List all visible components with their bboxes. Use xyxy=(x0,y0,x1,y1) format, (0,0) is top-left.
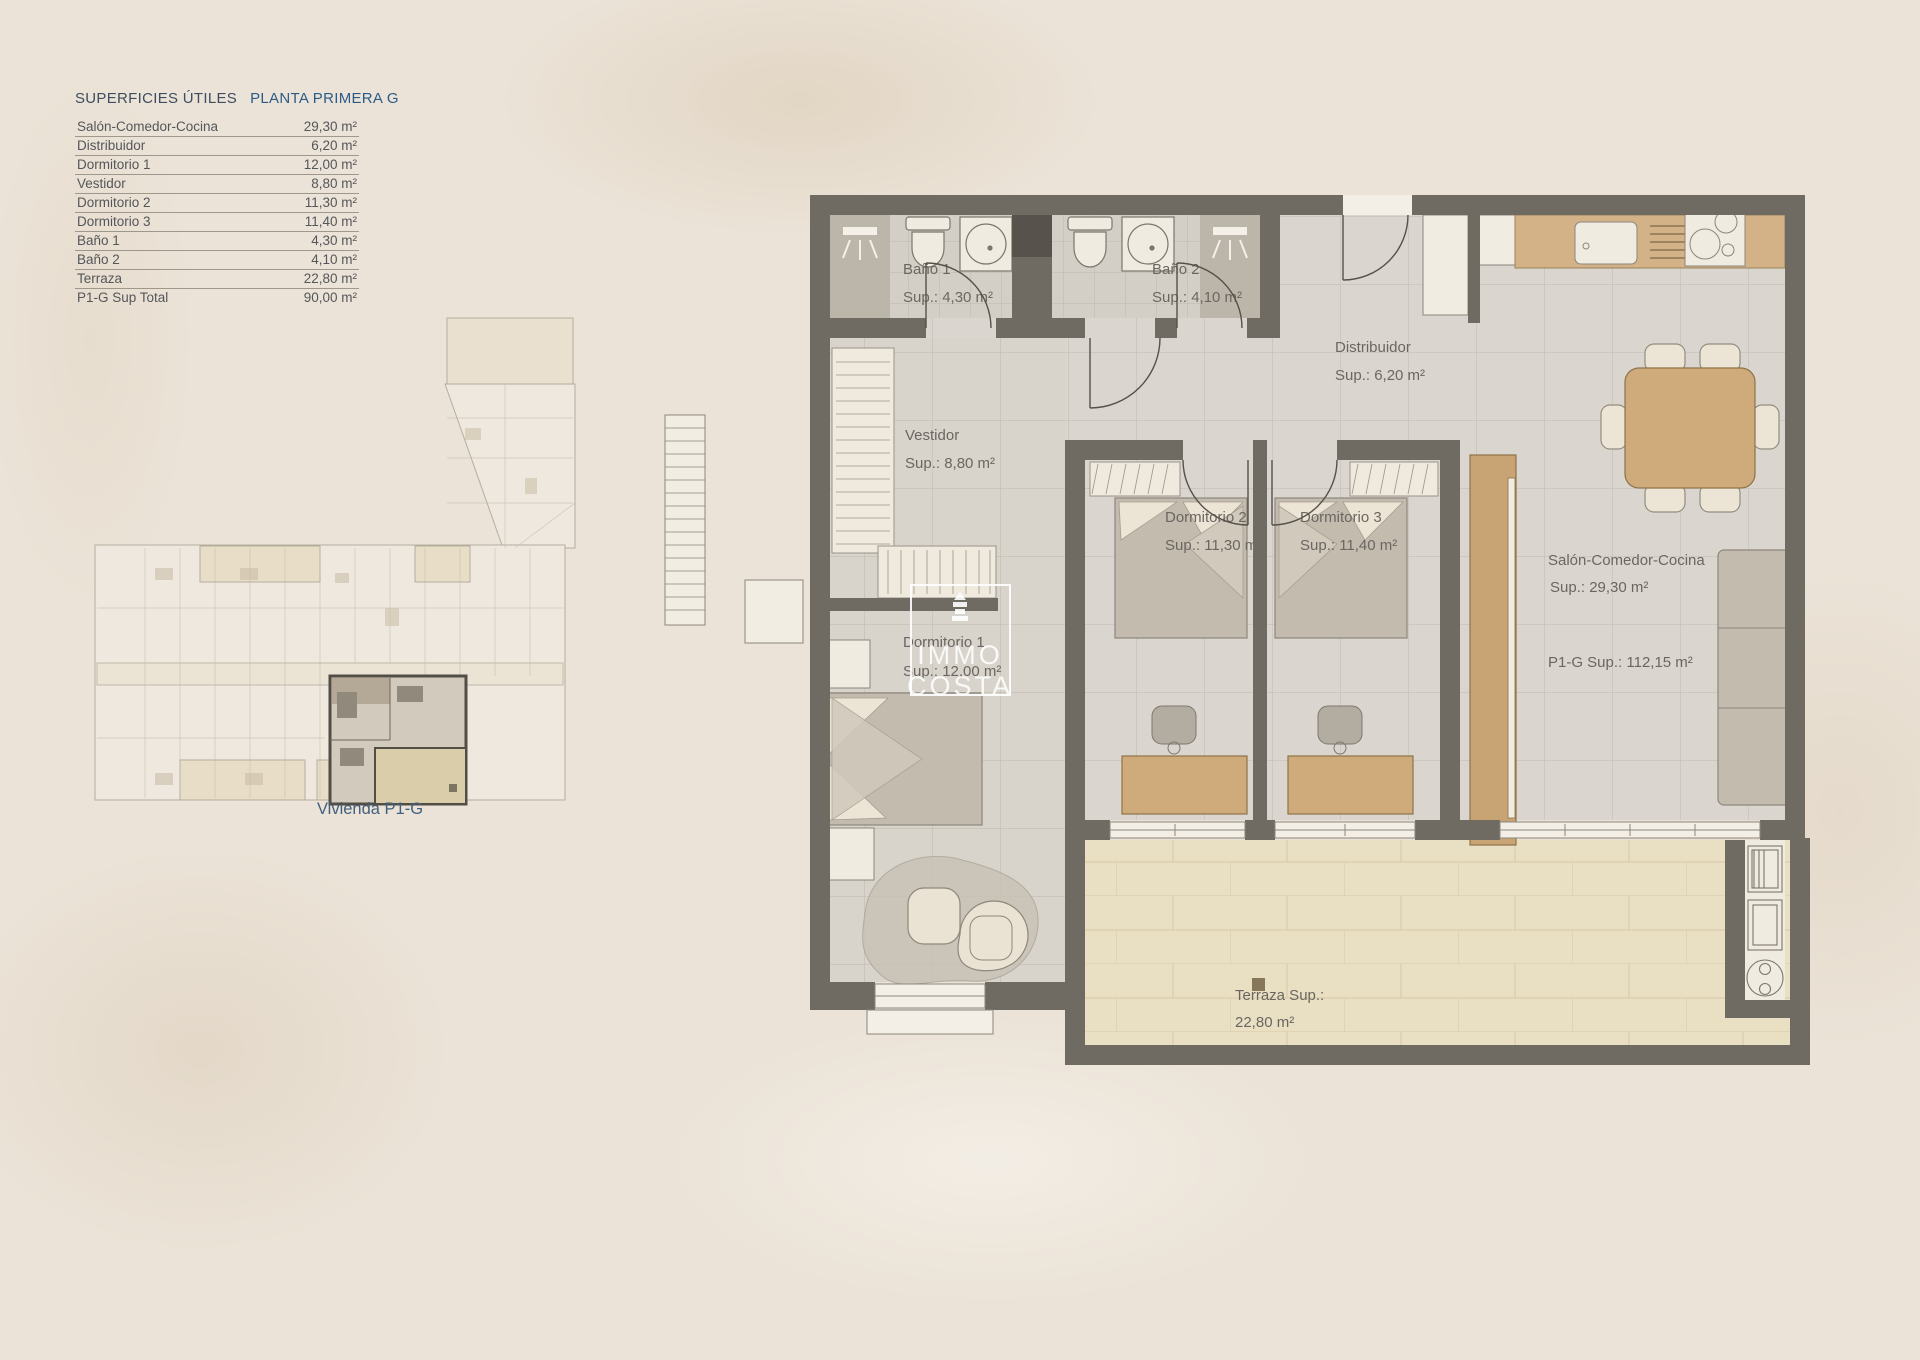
row-label: Distribuidor xyxy=(77,138,145,153)
row-label: Baño 1 xyxy=(77,233,120,248)
row-label: Dormitorio 3 xyxy=(77,214,151,229)
table-row: Vestidor8,80 m² xyxy=(75,175,359,194)
exterior-louver xyxy=(665,415,803,643)
table-title-plan-name: PLANTA PRIMERA G xyxy=(250,90,399,107)
overview-building-plan xyxy=(85,308,585,808)
water-heater-icon xyxy=(1747,960,1783,996)
svg-text:Sup.: 11,30 m²: Sup.: 11,30 m² xyxy=(1165,537,1262,554)
row-label: Dormitorio 1 xyxy=(77,157,151,172)
table-row-total: P1-G Sup Total90,00 m² xyxy=(75,289,359,307)
desk-icon xyxy=(1122,756,1247,814)
table-title-main: SUPERFICIES ÚTILES xyxy=(75,90,237,107)
svg-text:Distribuidor: Distribuidor xyxy=(1335,339,1411,356)
entrance-threshold xyxy=(1343,195,1412,215)
dining-table-icon xyxy=(1625,368,1755,488)
svg-text:P1-G Sup.: 112,15 m²: P1-G Sup.: 112,15 m² xyxy=(1548,654,1693,671)
svg-text:Terraza Sup.:: Terraza Sup.: xyxy=(1235,987,1324,1004)
svg-text:Sup.: 6,20 m²: Sup.: 6,20 m² xyxy=(1335,367,1425,384)
floor-plan: Baño 1Sup.: 4,30 m² Baño 2Sup.: 4,10 m² … xyxy=(660,148,1825,1078)
laundry-sink-icon xyxy=(1748,846,1782,892)
table-row: Distribuidor6,20 m² xyxy=(75,137,359,156)
chair-icon xyxy=(908,888,960,944)
label-total-sup: P1-G Sup.: 112,15 m² xyxy=(1548,654,1693,671)
row-label: P1-G Sup Total xyxy=(77,290,168,305)
row-label: Terraza xyxy=(77,271,122,286)
bedroom1-window xyxy=(867,984,993,1034)
table-row: Terraza22,80 m² xyxy=(75,270,359,289)
overview-caption: Vivienda P1-G xyxy=(248,800,492,819)
table-row: Dormitorio 311,40 m² xyxy=(75,213,359,232)
overview-highlighted-unit xyxy=(330,676,466,804)
page: { "colors": { "accent_blue": "#2b5c88", … xyxy=(0,0,1920,1280)
row-label: Salón-Comedor-Cocina xyxy=(77,119,218,134)
row-value: 90,00 m² xyxy=(304,290,357,305)
entry-closet xyxy=(1423,215,1468,315)
desk-icon xyxy=(1288,756,1413,814)
utility-niche xyxy=(1745,840,1785,1000)
table-row: Baño 24,10 m² xyxy=(75,251,359,270)
table-row: Baño 14,30 m² xyxy=(75,232,359,251)
svg-text:Baño 2: Baño 2 xyxy=(1152,261,1200,278)
table-row: Salón-Comedor-Cocina29,30 m² xyxy=(75,118,359,137)
svg-text:Sup.: 4,10 m²: Sup.: 4,10 m² xyxy=(1152,289,1242,306)
row-value: 29,30 m² xyxy=(304,119,357,134)
row-label: Dormitorio 2 xyxy=(77,195,151,210)
row-label: Baño 2 xyxy=(77,252,120,267)
svg-text:Salón-Comedor-Cocina: Salón-Comedor-Cocina xyxy=(1548,552,1705,569)
svg-text:Sup.: 11,40 m²: Sup.: 11,40 m² xyxy=(1300,537,1397,554)
row-label: Vestidor xyxy=(77,176,126,191)
svg-text:Sup.: 8,80 m²: Sup.: 8,80 m² xyxy=(905,455,995,472)
table-row: Dormitorio 112,00 m² xyxy=(75,156,359,175)
washbasin-icon xyxy=(960,217,1012,271)
row-value: 11,40 m² xyxy=(305,214,357,229)
row-value: 22,80 m² xyxy=(304,271,357,286)
watermark-line1: IMMO xyxy=(917,640,1003,670)
table-title: SUPERFICIES ÚTILESPLANTA PRIMERA G xyxy=(75,90,359,107)
table-row: Dormitorio 211,30 m² xyxy=(75,194,359,213)
row-value: 11,30 m² xyxy=(305,195,357,210)
row-value: 12,00 m² xyxy=(304,157,357,172)
row-value: 8,80 m² xyxy=(311,176,357,191)
svg-text:Sup.: 29,30 m²: Sup.: 29,30 m² xyxy=(1550,579,1648,596)
row-value: 4,10 m² xyxy=(311,252,357,267)
salon-wardrobe xyxy=(1470,455,1516,845)
svg-text:Vestidor: Vestidor xyxy=(905,427,959,444)
row-value: 6,20 m² xyxy=(311,138,357,153)
watermark-line2: COSTA xyxy=(907,671,1013,701)
area-table: SUPERFICIES ÚTILESPLANTA PRIMERA G Salón… xyxy=(75,90,359,307)
sofa-icon xyxy=(1718,550,1790,805)
svg-text:22,80 m²: 22,80 m² xyxy=(1235,1014,1294,1031)
row-value: 4,30 m² xyxy=(311,233,357,248)
bed-icon xyxy=(822,693,982,825)
watercolor-blotch xyxy=(0,760,560,1340)
